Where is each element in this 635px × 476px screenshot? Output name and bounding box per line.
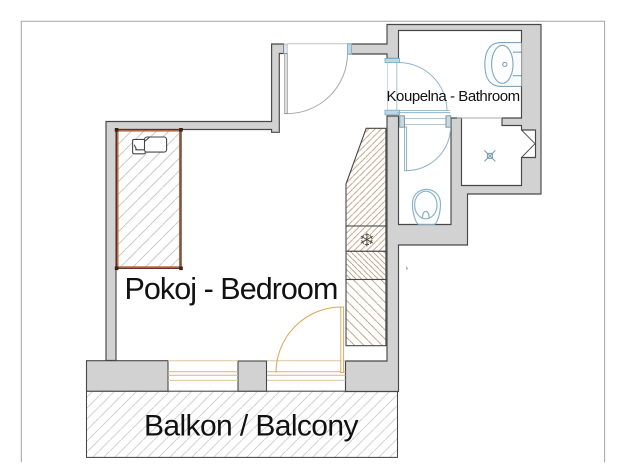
svg-text:Koupelna - Bathroom: Koupelna - Bathroom bbox=[387, 88, 520, 105]
svg-text:Balkon / Balcony: Balkon / Balcony bbox=[144, 410, 358, 443]
svg-text:Pokoj - Bedroom: Pokoj - Bedroom bbox=[125, 272, 338, 306]
